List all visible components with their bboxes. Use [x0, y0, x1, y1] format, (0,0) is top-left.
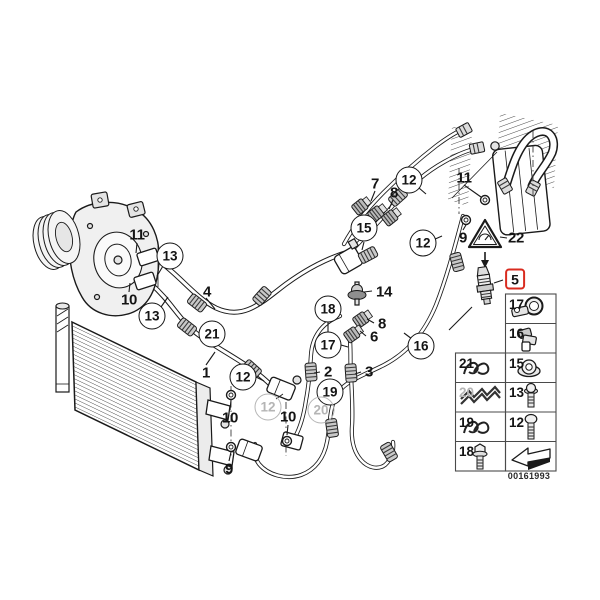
table-part-13[interactable]: 13	[509, 385, 524, 400]
elbow-fitting	[235, 438, 263, 461]
callout-18[interactable]: 18	[315, 296, 342, 323]
diagram-code: 00161993	[494, 471, 564, 481]
table-part-18[interactable]: 18	[459, 444, 474, 459]
callout-14[interactable]: 14	[376, 284, 392, 301]
grommet-14	[348, 282, 366, 305]
callout-12[interactable]: 12	[230, 364, 257, 391]
callout-3[interactable]: 3	[365, 364, 373, 381]
callout-17[interactable]: 17	[315, 332, 342, 359]
short-bolt-glyph	[525, 384, 538, 408]
ac-compressor	[28, 192, 160, 316]
callout-15[interactable]: 15	[351, 215, 378, 242]
warning-triangle-icon	[469, 220, 501, 247]
callout-12[interactable]: 12	[410, 230, 437, 257]
receiver-drier	[56, 303, 69, 392]
callout-22[interactable]: 22	[508, 230, 524, 247]
table-part-17[interactable]: 17	[509, 297, 524, 312]
table-part-16[interactable]: 16	[509, 326, 524, 341]
fitting-8b	[352, 308, 374, 328]
callout-5[interactable]: 5	[505, 269, 525, 290]
callout-16[interactable]: 16	[408, 333, 435, 360]
ac-refrigerant-lines-parts-diagram: 1110417814862310109119221313211212151218…	[0, 0, 600, 600]
callout-9[interactable]: 9	[459, 230, 467, 247]
callout-1[interactable]: 1	[202, 365, 210, 382]
callout-12[interactable]: 12	[255, 394, 282, 421]
evaporator-core	[492, 145, 551, 236]
callout-4[interactable]: 4	[203, 284, 211, 301]
table-part-12[interactable]: 12	[509, 415, 524, 430]
wall-fitting-bolt	[491, 142, 499, 150]
callout-13[interactable]: 13	[139, 303, 166, 330]
table-part-19[interactable]: 19	[459, 415, 474, 430]
hex-screw-glyph	[473, 444, 487, 469]
callout-10[interactable]: 10	[222, 410, 238, 427]
points-to-arrow	[481, 252, 489, 268]
direction-arrow-glyph	[512, 448, 550, 470]
callout-12[interactable]: 12	[396, 167, 423, 194]
callout-9[interactable]: 9	[225, 461, 233, 478]
callout-10[interactable]: 10	[121, 292, 137, 309]
callout-7[interactable]: 7	[371, 176, 379, 193]
table-part-20[interactable]: 20	[459, 385, 474, 400]
callout-6[interactable]: 6	[370, 329, 378, 346]
callout-10[interactable]: 10	[280, 409, 296, 426]
callout-8[interactable]: 8	[378, 316, 386, 333]
callout-13[interactable]: 13	[157, 243, 184, 270]
callout-21[interactable]: 21	[199, 321, 226, 348]
table-part-15[interactable]: 15	[509, 356, 524, 371]
callout-20[interactable]: 20	[308, 397, 335, 424]
table-part-21[interactable]: 21	[459, 356, 474, 371]
callout-11[interactable]: 11	[129, 227, 144, 244]
service-valve-5	[474, 266, 495, 305]
callout-11[interactable]: 11	[456, 170, 471, 187]
long-bolt-glyph	[525, 415, 537, 440]
